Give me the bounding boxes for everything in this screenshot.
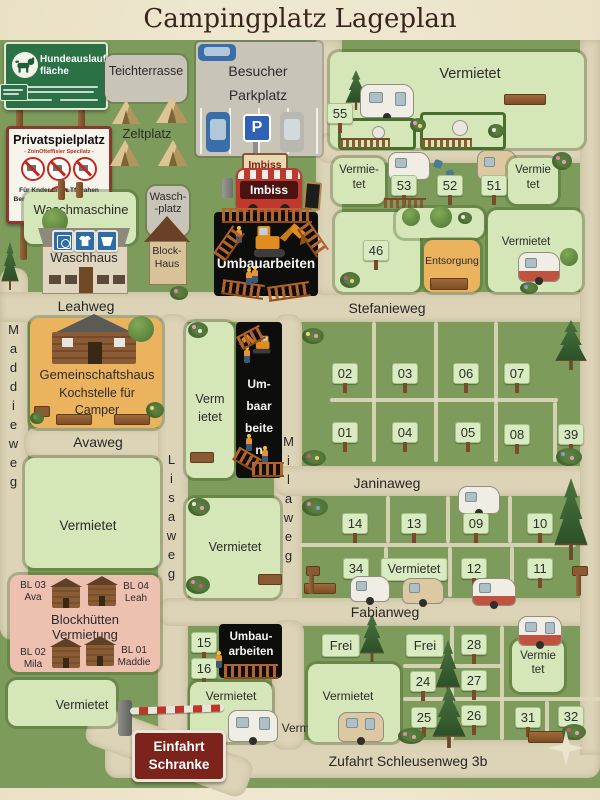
small-sign xyxy=(190,452,214,463)
plot-tag-13: 13 xyxy=(401,513,427,534)
street-label-avaweg: Avaweg xyxy=(73,434,123,450)
caravan-red-accent xyxy=(472,578,516,606)
vermietet-51-right-line2: tet xyxy=(527,179,540,192)
caravan-beige xyxy=(338,712,384,742)
caravan-white xyxy=(360,84,414,118)
street-label-milaweg: Milaweg xyxy=(281,434,296,567)
construction-worker xyxy=(246,272,252,285)
tree-trunk xyxy=(76,182,83,198)
plot-tag-07: 07 xyxy=(504,363,530,384)
flower-bush xyxy=(186,576,210,594)
cabin-mila-label: Mila xyxy=(24,659,42,670)
construction-bottom-label-line1: Umbau- xyxy=(230,631,273,643)
grid-path xyxy=(448,547,452,597)
road-janinaweg xyxy=(274,466,600,496)
grid-path xyxy=(446,496,450,543)
garden-table xyxy=(452,120,468,136)
waschhaus-label: Waschhaus xyxy=(50,251,117,266)
flower-bush xyxy=(520,282,538,294)
imbiss-truck-band: Imbiss xyxy=(240,181,298,199)
blockhaus-label-line1: Block- xyxy=(152,246,181,258)
plot-tag-14: 14 xyxy=(342,513,368,534)
street-label-zufahrt: Zufahrt Schleusenweg 3b xyxy=(329,753,488,769)
vermietet-bottom-left-label: Vermietet xyxy=(56,698,109,712)
playground-sign-subtitle: - ZoinOfteffisier Specilatz - xyxy=(9,149,109,155)
bench xyxy=(430,284,432,286)
car-blue-top xyxy=(198,44,236,61)
vermietet-51-right-line1: Vermie xyxy=(515,164,551,177)
gemeinschaftshaus-body xyxy=(52,332,136,364)
construction-middle-label-line2: baar xyxy=(246,399,271,413)
blockhuetten-label-line1: Blockhütten xyxy=(51,613,119,628)
waschhaus-door xyxy=(79,267,93,293)
dog-icon xyxy=(12,52,38,78)
plot-tag-52: 52 xyxy=(437,175,463,196)
gemeinschaftshaus-door xyxy=(88,342,102,364)
waschhaus-window xyxy=(49,275,61,284)
vermietet-bottom-a-label: Vermietet xyxy=(206,690,257,703)
garden-fence xyxy=(340,138,390,148)
signpost-post xyxy=(309,574,314,594)
plot-tag-26: 26 xyxy=(461,705,487,726)
no-bikes-icon xyxy=(73,157,97,181)
plot-tag-08: 08 xyxy=(504,424,530,445)
cabin-ava-label: Ava xyxy=(24,592,41,603)
verm-ietet-label-line1: Verm xyxy=(195,392,224,406)
cabin-leah-label: Leah xyxy=(125,593,147,604)
construction-middle-label-line4: n xyxy=(255,443,262,457)
street-label-leahweg: Leahweg xyxy=(58,298,115,314)
flower-bush xyxy=(398,728,424,744)
street-label-lisaweg: Lisaweg xyxy=(164,452,179,585)
signpost-post xyxy=(576,574,581,596)
cabin-bl04-label: BL 04 xyxy=(123,581,149,592)
imbiss-awning xyxy=(238,170,300,179)
vermietet-middle-label: Vermietet xyxy=(209,540,262,554)
road-right-edge xyxy=(580,40,600,755)
plot-tag-51: 51 xyxy=(481,175,507,196)
plot-tag-04: 04 xyxy=(392,422,418,443)
bench xyxy=(114,414,150,425)
construction-fence xyxy=(224,664,278,679)
plot-tag-53: 53 xyxy=(391,175,417,196)
flower-bush xyxy=(458,212,472,224)
bench xyxy=(504,94,546,105)
grid-path xyxy=(500,626,504,740)
plot-tag-25: 25 xyxy=(411,707,437,728)
bench xyxy=(430,278,468,290)
dog-sign-line2: fläche xyxy=(40,66,104,77)
caravan-white xyxy=(228,710,278,742)
parking-sign: P xyxy=(243,114,271,142)
plot-tag-46: 46 xyxy=(363,240,389,261)
gemeinschaftshaus-window xyxy=(114,338,125,347)
cabin-bl01-label: BL 01 xyxy=(121,645,147,656)
cabin-bl03 xyxy=(52,586,80,608)
bench xyxy=(528,731,564,743)
construction-middle-label-line3: beite xyxy=(245,421,273,435)
street-label-fabianweg: Fabianweg xyxy=(351,604,420,620)
waschhaus-window xyxy=(65,275,77,284)
leafy-tree xyxy=(402,208,420,226)
vermietet-entsorgung-right-label: Vermietet xyxy=(502,236,551,249)
vermie-tet-bottom-right-line1: Vermie xyxy=(520,650,556,663)
grid-path xyxy=(508,496,512,543)
gemeinschaftshaus-window xyxy=(62,338,73,347)
teichterrasse-area xyxy=(105,55,187,102)
construction-main-label: Umbauarbeiten xyxy=(217,256,315,271)
no-ballgames-icon xyxy=(47,157,71,181)
caravan-red-accent xyxy=(518,252,560,282)
plot-label-frei-2: Frei xyxy=(406,634,444,657)
grid-path xyxy=(372,322,376,462)
entrance-sign-line1: Einfahrt xyxy=(135,739,223,754)
plot-tag-39: 39 xyxy=(558,424,584,445)
leafy-tree xyxy=(430,206,452,228)
imbiss-truck-label: Imbiss xyxy=(250,183,288,197)
plot-tag-15: 15 xyxy=(191,632,217,653)
plot-tag-10: 10 xyxy=(527,513,553,534)
construction-bottom-label-line2: arbeiten xyxy=(229,646,274,658)
plot-tag-16: 16 xyxy=(191,658,217,679)
tree-trunk xyxy=(58,180,65,200)
plot-tag-03: 03 xyxy=(392,363,418,384)
plot-label-frei-1: Frei xyxy=(322,634,360,657)
imbiss-truck: Imbiss xyxy=(236,168,302,212)
verm-ietet-label-line2: ietet xyxy=(198,410,222,424)
grid-path xyxy=(386,496,390,543)
flower-bush xyxy=(188,322,208,338)
flower-bush xyxy=(146,402,164,418)
caravan-white xyxy=(350,576,390,602)
barrier-post xyxy=(118,700,132,736)
grid-path xyxy=(300,543,576,547)
plot-tag-27: 27 xyxy=(461,670,487,691)
laundry-tub-icon xyxy=(96,230,118,252)
cabin-maddie-label: Maddie xyxy=(118,657,151,668)
small-green-sign xyxy=(0,84,28,101)
vermie-tet-bottom-right-line2: tet xyxy=(532,664,545,677)
street-label-janinaweg: Janinaweg xyxy=(354,475,421,491)
plot-vermietet-left-big xyxy=(25,458,160,568)
leafy-tree xyxy=(560,248,578,266)
small-sign xyxy=(258,574,282,585)
flower-bush xyxy=(488,124,504,138)
cabin-bl04 xyxy=(88,584,116,606)
grid-path xyxy=(330,398,558,402)
gemeinschaftshaus-label-line1: Gemeinschaftshaus xyxy=(40,368,155,383)
page-title: Campingplatz Lageplan xyxy=(0,4,600,34)
entrance-sign: Einfahrt Schranke xyxy=(132,730,226,782)
dog-sign-line1: Hundeauslauf- xyxy=(40,54,104,65)
vermietet-53-left-line1: Vermie- xyxy=(339,164,379,177)
washer-icon xyxy=(52,230,74,252)
car-gray-parked xyxy=(280,112,304,152)
flower-bush xyxy=(302,498,328,516)
plot-tag-05: 05 xyxy=(455,422,481,443)
caravan-beige xyxy=(402,578,444,604)
construction-worker xyxy=(244,350,250,363)
entrance-sign-line2: Schranke xyxy=(135,757,223,772)
plot-tag-12: 12 xyxy=(461,558,487,579)
parking-sign-letter: P xyxy=(252,119,263,136)
flower-bush xyxy=(30,412,44,424)
chalkboard-sign xyxy=(303,181,322,210)
plot-tag-28: 28 xyxy=(461,634,487,655)
plot-tag-02: 02 xyxy=(332,363,358,384)
plot-tag-09: 09 xyxy=(463,513,489,534)
flower-bush xyxy=(340,272,360,288)
construction-worker xyxy=(246,438,252,451)
parkplatz-label-line2: Parkplatz xyxy=(229,88,287,104)
plot-tag-06: 06 xyxy=(453,363,479,384)
no-littering-icon xyxy=(21,157,45,181)
grid-path xyxy=(494,322,498,462)
parkplatz-label-line1: Besucher xyxy=(228,64,287,80)
waschhaus-window xyxy=(97,275,109,284)
garden-fence xyxy=(384,198,426,208)
flower-bush xyxy=(556,448,582,466)
garden-fence xyxy=(422,138,472,148)
construction-worker xyxy=(252,270,258,283)
shirt-icon xyxy=(74,230,96,252)
campground-map: Campingplatz Lageplan Hundeauslauf- fläc… xyxy=(0,0,600,788)
playground-sign-title: Privatspielplatz xyxy=(9,133,109,147)
street-label-stefanieweg: Stefanieweg xyxy=(348,300,425,316)
zeltplatz-label: Zeltplatz xyxy=(122,127,171,142)
flower-bush xyxy=(410,118,426,132)
construction-worker xyxy=(216,655,222,668)
flower-bush xyxy=(302,328,324,344)
plot-tag-55: 55 xyxy=(327,103,353,124)
teichterrasse-label: Teichterrasse xyxy=(109,64,183,78)
vermietet-53-left-line2: tet xyxy=(353,179,366,192)
gemeinschaftshaus-label-line2: Kochstelle für xyxy=(59,386,135,400)
cabin-bl02-label: BL 02 xyxy=(20,647,46,658)
vermietet-top-right-label: Vermietet xyxy=(439,66,500,82)
plot-tag-01: 01 xyxy=(332,422,358,443)
flower-bush xyxy=(302,450,326,466)
caravan-red-accent xyxy=(518,616,562,646)
street-label-maddieweg: Maddieweg xyxy=(6,322,21,493)
waschplatz-label-line1: Wasch- xyxy=(150,191,187,203)
plot-tag-24: 24 xyxy=(410,671,436,692)
construction-fence xyxy=(222,208,312,223)
construction-middle-label-line1: Um- xyxy=(247,377,270,391)
cabin-bl02 xyxy=(52,646,80,668)
car-blue-parked xyxy=(206,112,230,152)
trash-bin xyxy=(222,178,233,198)
construction-fence xyxy=(252,462,284,477)
leafy-tree xyxy=(128,316,154,342)
waschhaus-window xyxy=(113,275,125,284)
cabin-bl03-label: BL 03 xyxy=(20,580,46,591)
blockhaus-label-line2: Haus xyxy=(155,259,180,271)
flower-bush xyxy=(170,286,188,300)
plot-tag-31: 31 xyxy=(515,707,541,728)
flower-bush xyxy=(188,498,210,516)
flower-bush xyxy=(552,152,572,170)
vermietet-left-big-label: Vermietet xyxy=(59,518,116,533)
bench xyxy=(56,414,92,425)
cabin-bl01 xyxy=(86,644,114,666)
waschplatz-label-line2: -platz xyxy=(155,203,182,215)
vermietet-bottom-b-label: Vermietet xyxy=(323,690,374,703)
plot-tag-11: 11 xyxy=(527,558,553,579)
caravan-white xyxy=(458,486,500,514)
entsorgung-label: Entsorgung xyxy=(425,256,479,268)
grid-path xyxy=(434,322,438,462)
